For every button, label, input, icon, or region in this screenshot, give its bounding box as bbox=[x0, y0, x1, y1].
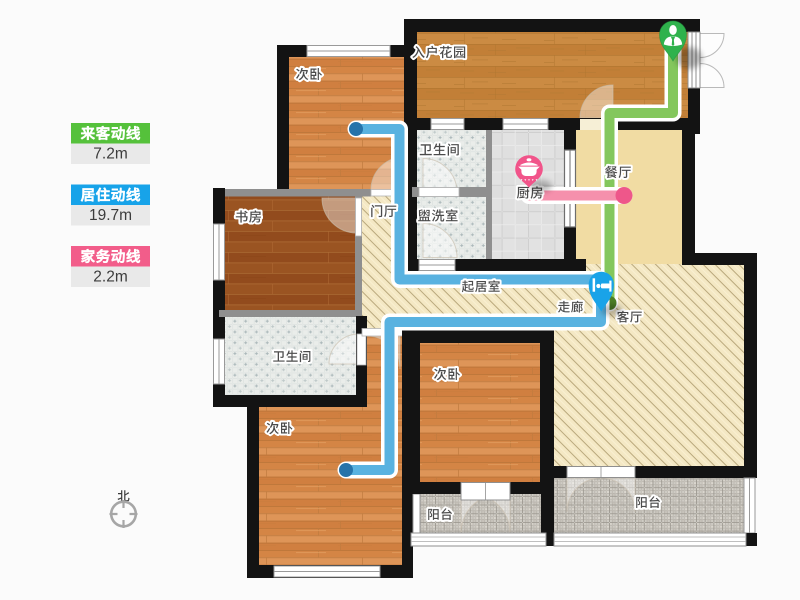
svg-text:2.2m: 2.2m bbox=[93, 269, 127, 286]
svg-text:19.7m: 19.7m bbox=[89, 207, 132, 224]
svg-text:7.2m: 7.2m bbox=[93, 146, 127, 163]
